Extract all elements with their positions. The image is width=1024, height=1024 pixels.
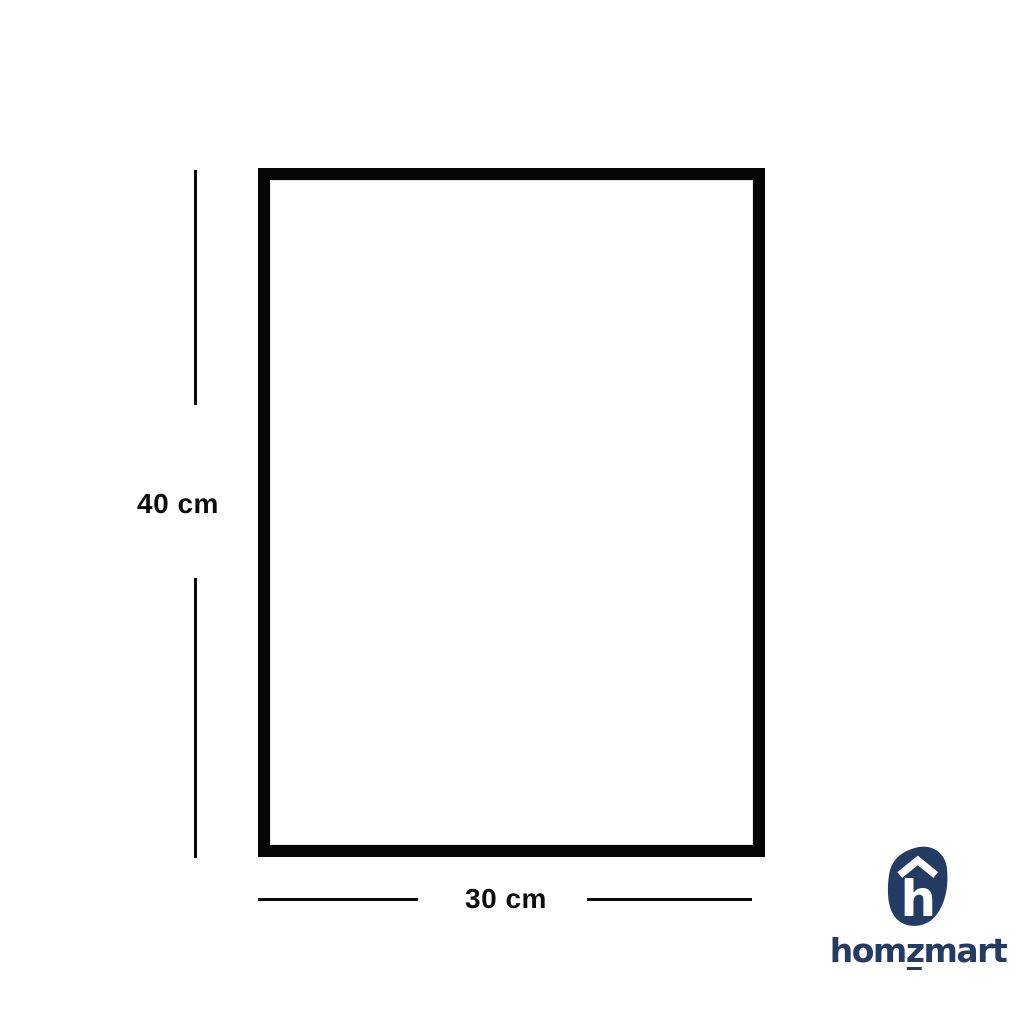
picture-frame (258, 168, 765, 857)
width-dimension-line-right (587, 898, 752, 901)
homzmart-logo: h homzmart (830, 845, 1007, 967)
height-dimension-line-lower (194, 578, 197, 858)
wordmark-pre: hom (830, 931, 906, 970)
width-dimension-label: 30 cm (465, 883, 547, 915)
height-dimension-line-upper (194, 170, 197, 405)
wordmark-post: mart (924, 931, 1007, 970)
homzmart-logo-icon: h (885, 845, 951, 929)
wordmark-z-underlined: z (906, 934, 924, 967)
product-dimension-image: 40 cm 30 cm h homzmart (0, 0, 1024, 1024)
homzmart-wordmark: homzmart (830, 934, 1007, 967)
logo-letter-h: h (901, 870, 937, 928)
height-dimension-label: 40 cm (137, 488, 219, 520)
width-dimension-line-left (258, 898, 418, 901)
